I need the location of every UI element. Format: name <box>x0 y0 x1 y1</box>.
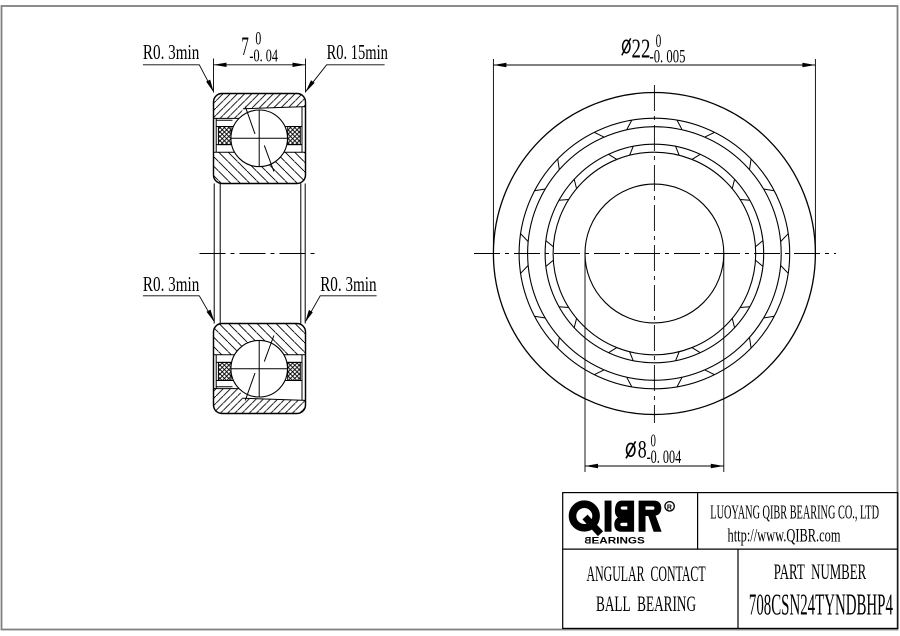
svg-text:R: R <box>667 505 672 512</box>
svg-text:B: B <box>584 536 591 547</box>
svg-text:EARINGS: EARINGS <box>592 536 645 547</box>
svg-text:8: 8 <box>638 434 647 463</box>
svg-text:R0. 3min: R0. 3min <box>320 272 377 296</box>
svg-text:R0. 3min: R0. 3min <box>143 40 200 64</box>
svg-text:LUOYANG QIBR BEARING CO., LTD: LUOYANG QIBR BEARING CO., LTD <box>710 501 879 523</box>
svg-text:22: 22 <box>632 33 651 63</box>
svg-text:PART NUMBER: PART NUMBER <box>774 559 867 584</box>
svg-text:BALL BEARING: BALL BEARING <box>596 591 696 616</box>
svg-text:R0. 3min: R0. 3min <box>143 272 200 296</box>
svg-text:708CSN24TYNDBHP4: 708CSN24TYNDBHP4 <box>749 587 893 622</box>
svg-text:ANGULAR CONTACT: ANGULAR CONTACT <box>587 561 706 586</box>
svg-text:7: 7 <box>241 32 249 61</box>
svg-text:-0. 04: -0. 04 <box>249 45 278 65</box>
svg-text:http://www.QIBR.com: http://www.QIBR.com <box>728 526 841 546</box>
svg-text:-0. 005: -0. 005 <box>650 47 686 68</box>
svg-text:R0. 15min: R0. 15min <box>327 40 389 64</box>
svg-text:-0. 004: -0. 004 <box>647 447 682 468</box>
